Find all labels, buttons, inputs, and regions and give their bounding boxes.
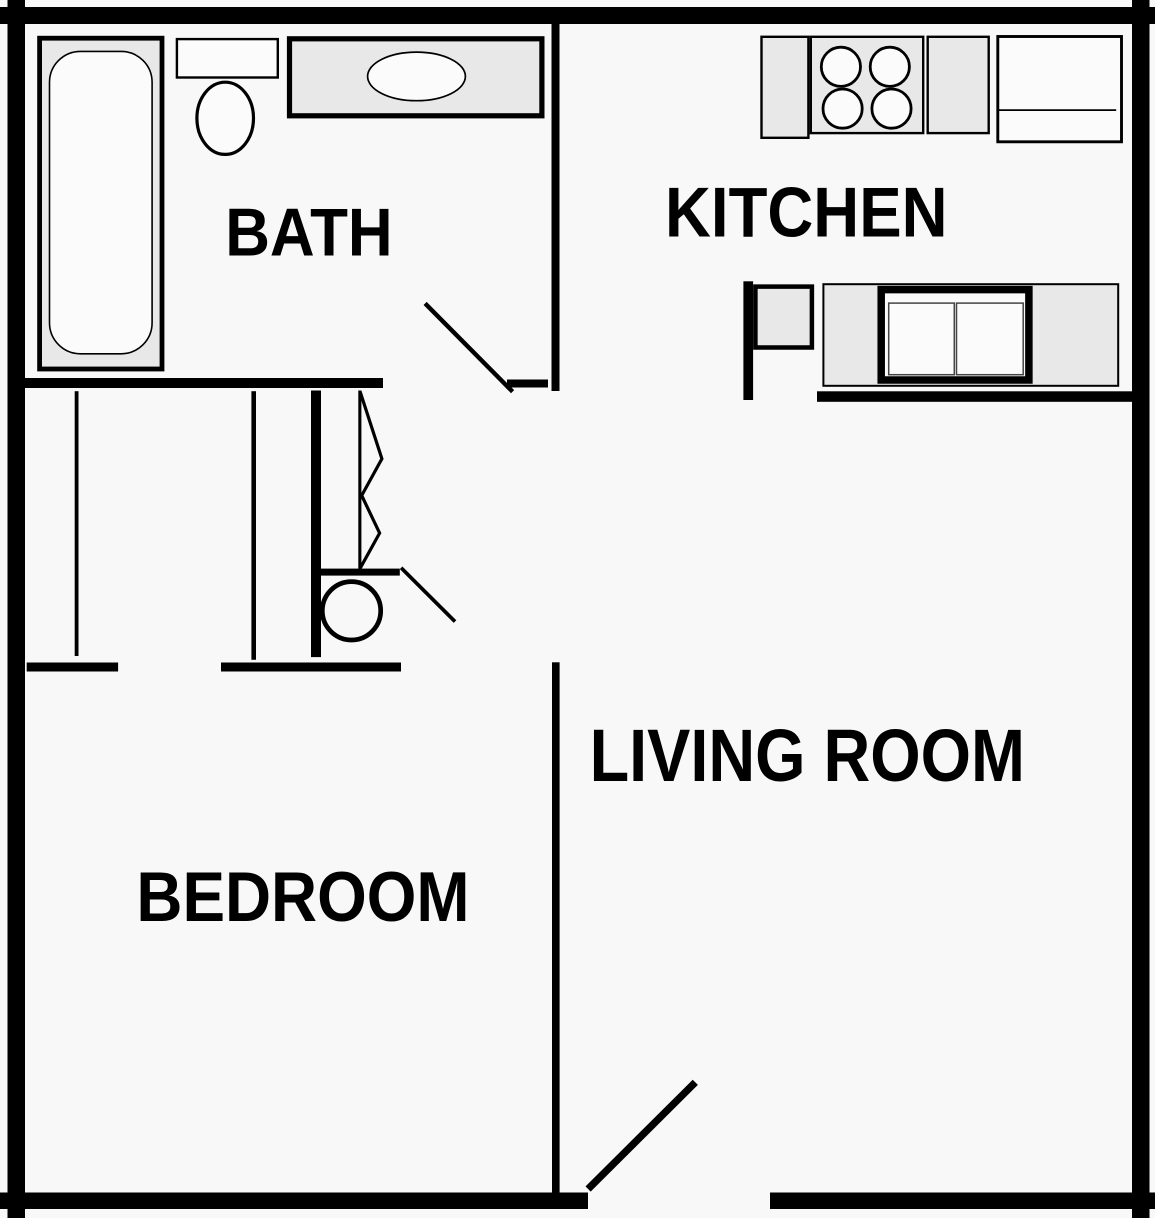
svg-text:KITCHEN: KITCHEN	[665, 173, 948, 252]
svg-text:LIVING ROOM: LIVING ROOM	[590, 714, 1025, 797]
svg-text:BEDROOM: BEDROOM	[136, 857, 469, 936]
svg-text:BATH: BATH	[225, 196, 393, 271]
